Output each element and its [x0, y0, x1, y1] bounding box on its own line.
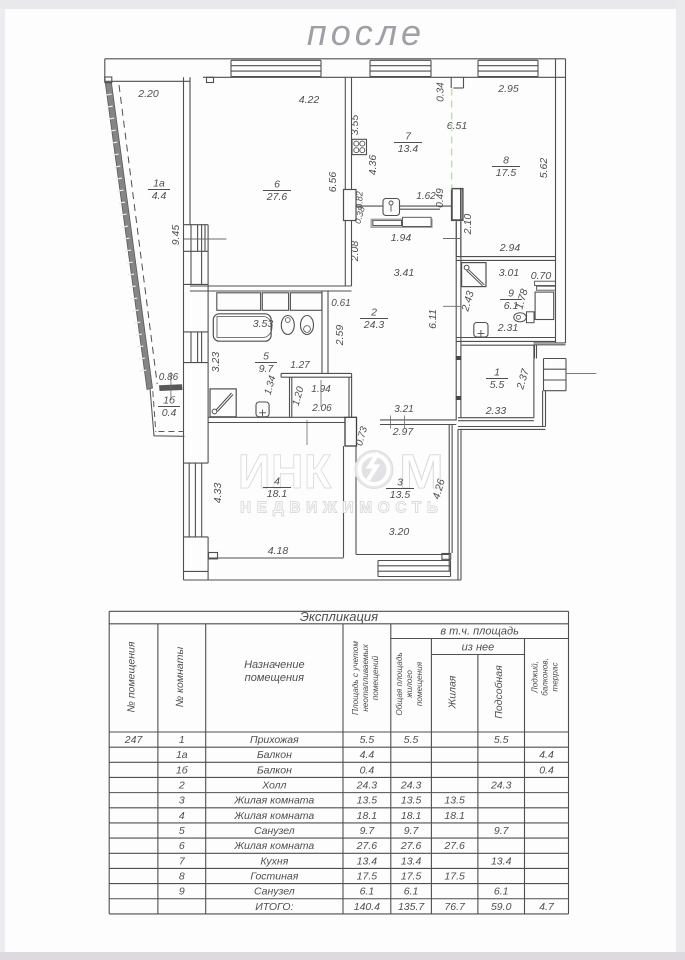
svg-text:Балкон: Балкон [257, 749, 292, 761]
svg-text:5: 5 [263, 351, 269, 363]
svg-text:4.36: 4.36 [367, 155, 379, 176]
svg-text:2.94: 2.94 [499, 242, 521, 254]
svg-text:0.70: 0.70 [531, 270, 552, 282]
svg-text:13.5: 13.5 [444, 795, 465, 807]
svg-text:помещения: помещения [245, 672, 304, 684]
svg-text:5.5: 5.5 [360, 734, 375, 746]
svg-text:3.23: 3.23 [210, 352, 222, 373]
svg-text:неотапливаемых: неотапливаемых [361, 643, 370, 711]
svg-text:24.3: 24.3 [400, 780, 422, 792]
svg-text:18.1: 18.1 [267, 488, 287, 500]
svg-text:4: 4 [274, 476, 280, 488]
svg-text:3.01: 3.01 [499, 267, 519, 279]
svg-text:2: 2 [370, 307, 377, 319]
svg-text:27.6: 27.6 [400, 840, 422, 852]
svg-text:3.41: 3.41 [394, 267, 414, 279]
svg-text:17.5: 17.5 [496, 167, 517, 179]
svg-text:4: 4 [179, 810, 185, 822]
svg-text:3.20: 3.20 [389, 526, 410, 538]
svg-text:13.4: 13.4 [398, 143, 419, 155]
svg-text:17.5: 17.5 [444, 871, 465, 883]
svg-text:2.10: 2.10 [462, 214, 474, 236]
svg-text:2.95: 2.95 [497, 83, 519, 95]
svg-text:24.3: 24.3 [356, 780, 378, 792]
svg-text:6: 6 [274, 179, 280, 191]
svg-text:1: 1 [179, 734, 185, 746]
svg-text:Жилая комната: Жилая комната [233, 840, 314, 852]
svg-text:6.11: 6.11 [427, 309, 439, 329]
svg-text:балконов,: балконов, [541, 658, 550, 696]
svg-text:17.5: 17.5 [357, 871, 378, 883]
svg-text:0.4: 0.4 [360, 764, 375, 776]
svg-text:Жилая: Жилая [447, 675, 459, 709]
svg-text:1а: 1а [176, 749, 188, 761]
svg-text:2.06: 2.06 [311, 403, 332, 414]
svg-text:Балкон: Балкон [257, 764, 292, 776]
svg-text:0.4: 0.4 [539, 764, 554, 776]
svg-text:5.62: 5.62 [538, 158, 550, 179]
svg-text:140.4: 140.4 [354, 901, 380, 913]
svg-text:2.20: 2.20 [137, 88, 159, 100]
svg-text:3: 3 [179, 795, 185, 807]
svg-text:8: 8 [179, 871, 185, 883]
svg-text:жилого: жилого [405, 670, 414, 699]
svg-text:4.18: 4.18 [268, 545, 289, 557]
svg-text:9.7: 9.7 [360, 825, 376, 837]
svg-text:18.1: 18.1 [444, 810, 464, 822]
svg-text:3.53: 3.53 [253, 318, 274, 330]
svg-text:ИТОГО:: ИТОГО: [255, 901, 293, 913]
svg-text:18.1: 18.1 [401, 810, 421, 822]
svg-text:Назначение: Назначение [244, 659, 304, 671]
svg-text:№ помещения: № помещения [126, 641, 138, 712]
svg-text:из нее: из нее [462, 642, 495, 654]
svg-text:247: 247 [124, 734, 144, 746]
svg-text:135.7: 135.7 [398, 901, 425, 913]
svg-text:6.1: 6.1 [404, 886, 419, 898]
svg-text:Площадь с учетом: Площадь с учетом [351, 641, 360, 715]
svg-text:0.34: 0.34 [436, 82, 447, 102]
svg-text:Кухня: Кухня [260, 855, 288, 867]
svg-text:3.21: 3.21 [394, 404, 413, 415]
svg-text:Общая площадь: Общая площадь [395, 652, 404, 715]
svg-text:13.4: 13.4 [401, 855, 422, 867]
svg-text:18.1: 18.1 [357, 810, 377, 822]
svg-text:5: 5 [179, 825, 185, 837]
svg-text:24.3: 24.3 [490, 780, 512, 792]
svg-text:13.4: 13.4 [357, 855, 378, 867]
svg-text:0.4: 0.4 [162, 407, 177, 419]
svg-text:5.5: 5.5 [490, 379, 505, 391]
svg-text:4.33: 4.33 [212, 483, 224, 504]
svg-text:6.56: 6.56 [327, 172, 339, 193]
svg-text:5.5: 5.5 [404, 734, 419, 746]
svg-text:27.6: 27.6 [356, 840, 378, 852]
svg-text:2.33: 2.33 [485, 405, 507, 417]
svg-text:59.0: 59.0 [491, 901, 512, 913]
svg-text:2.08: 2.08 [349, 241, 361, 263]
svg-text:Жилая комната: Жилая комната [233, 810, 314, 822]
svg-text:2.59: 2.59 [334, 325, 346, 347]
svg-text:1.94: 1.94 [391, 232, 412, 244]
svg-text:27.6: 27.6 [266, 191, 288, 203]
svg-text:4.7: 4.7 [539, 901, 555, 913]
svg-text:2: 2 [178, 780, 185, 792]
svg-text:9: 9 [508, 288, 514, 300]
svg-text:Холл: Холл [261, 780, 286, 792]
svg-text:0.49: 0.49 [435, 188, 446, 208]
svg-text:№ комнаты: № комнаты [174, 647, 186, 708]
svg-text:13.5: 13.5 [390, 489, 411, 501]
svg-text:1а: 1а [153, 178, 165, 190]
svg-text:2.31: 2.31 [497, 322, 518, 334]
svg-text:6: 6 [179, 840, 185, 852]
svg-text:76.7: 76.7 [444, 901, 466, 913]
svg-text:после: после [307, 12, 425, 53]
svg-text:9.7: 9.7 [259, 363, 275, 375]
svg-text:3: 3 [397, 477, 403, 489]
svg-text:5.5: 5.5 [494, 734, 509, 746]
svg-text:0.86: 0.86 [159, 372, 179, 383]
svg-text:2.97: 2.97 [392, 426, 415, 438]
svg-text:17.5: 17.5 [401, 871, 422, 883]
svg-text:13.5: 13.5 [357, 795, 378, 807]
svg-text:24.3: 24.3 [363, 319, 385, 331]
svg-text:9.7: 9.7 [404, 825, 420, 837]
svg-text:Санузел: Санузел [254, 886, 295, 898]
svg-text:4.4: 4.4 [539, 749, 554, 761]
svg-text:0.61: 0.61 [331, 298, 350, 309]
svg-text:6.51: 6.51 [447, 120, 467, 132]
svg-text:1б: 1б [163, 395, 176, 407]
svg-text:13.4: 13.4 [491, 855, 512, 867]
svg-text:6.1: 6.1 [360, 886, 375, 898]
svg-text:Санузел: Санузел [254, 825, 295, 837]
svg-text:помещений: помещений [371, 655, 380, 700]
svg-text:4.4: 4.4 [360, 749, 375, 761]
svg-text:1.27: 1.27 [290, 360, 310, 371]
svg-text:9.7: 9.7 [494, 825, 510, 837]
svg-text:в т.ч. площадь: в т.ч. площадь [440, 626, 519, 638]
svg-text:Лоджий,: Лоджий, [531, 661, 540, 694]
svg-text:Экспликация: Экспликация [300, 609, 378, 624]
svg-text:террас: террас [551, 662, 560, 691]
svg-text:3.55: 3.55 [349, 115, 361, 136]
svg-text:4.22: 4.22 [299, 94, 320, 106]
svg-text:8: 8 [503, 155, 509, 167]
svg-text:1.62: 1.62 [416, 191, 436, 202]
svg-text:Жилая комната: Жилая комната [233, 795, 314, 807]
svg-text:Гостиная: Гостиная [250, 871, 298, 883]
svg-text:помещения: помещения [415, 661, 424, 706]
svg-text:9.45: 9.45 [170, 225, 182, 246]
svg-text:Прихожая: Прихожая [250, 734, 299, 746]
svg-text:1б: 1б [176, 764, 189, 776]
svg-text:27.6: 27.6 [443, 840, 465, 852]
svg-text:6.1: 6.1 [494, 886, 509, 898]
svg-text:4.4: 4.4 [152, 190, 167, 202]
svg-text:Подсобная: Подсобная [493, 665, 505, 719]
svg-text:9: 9 [179, 886, 185, 898]
svg-text:НЕДВИЖИМОСТЬ: НЕДВИЖИМОСТЬ [240, 500, 444, 517]
svg-text:13.5: 13.5 [401, 795, 422, 807]
svg-text:1: 1 [494, 367, 500, 379]
